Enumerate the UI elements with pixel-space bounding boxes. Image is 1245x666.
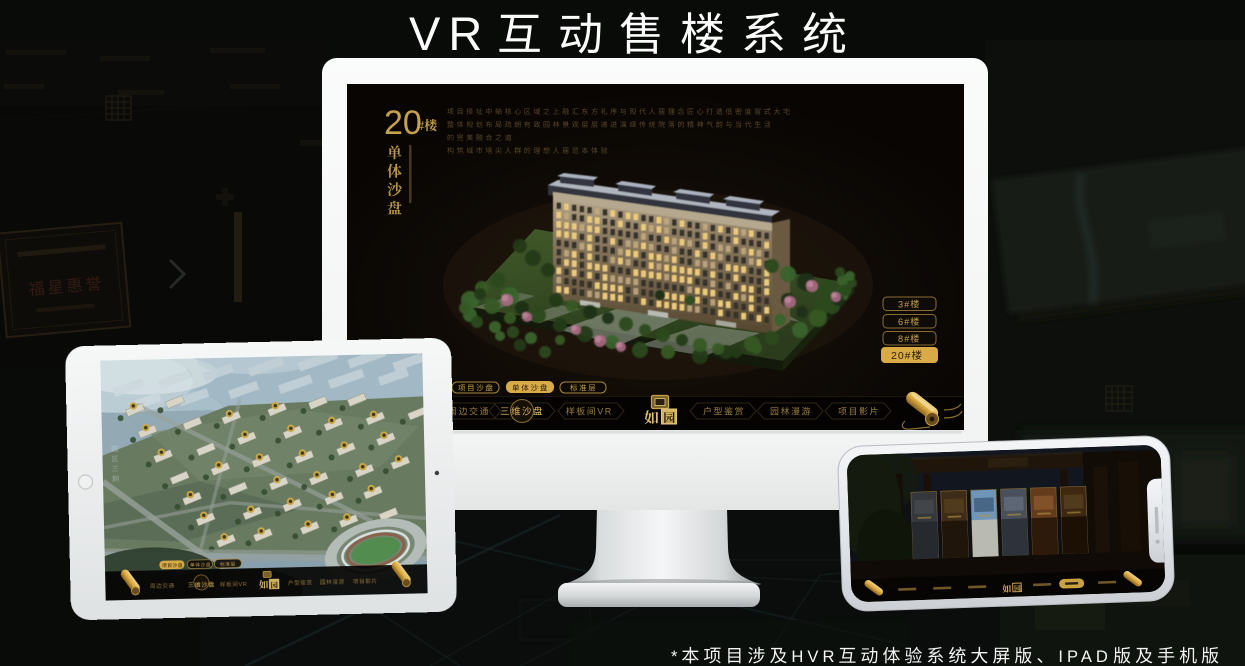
svg-text:VR: VR <box>238 582 247 588</box>
svg-text:#: # <box>417 118 425 133</box>
svg-text:*: * <box>671 647 681 666</box>
svg-text:3#: 3# <box>898 299 910 309</box>
svg-text:VR: VR <box>597 407 613 417</box>
svg-text:VR: VR <box>409 7 490 60</box>
svg-text:20#: 20# <box>891 350 912 362</box>
svg-text:6#: 6# <box>898 317 910 327</box>
svg-text:8#: 8# <box>898 334 910 344</box>
svg-text:HVR: HVR <box>791 647 838 666</box>
svg-text:IPAD: IPAD <box>1058 647 1112 666</box>
